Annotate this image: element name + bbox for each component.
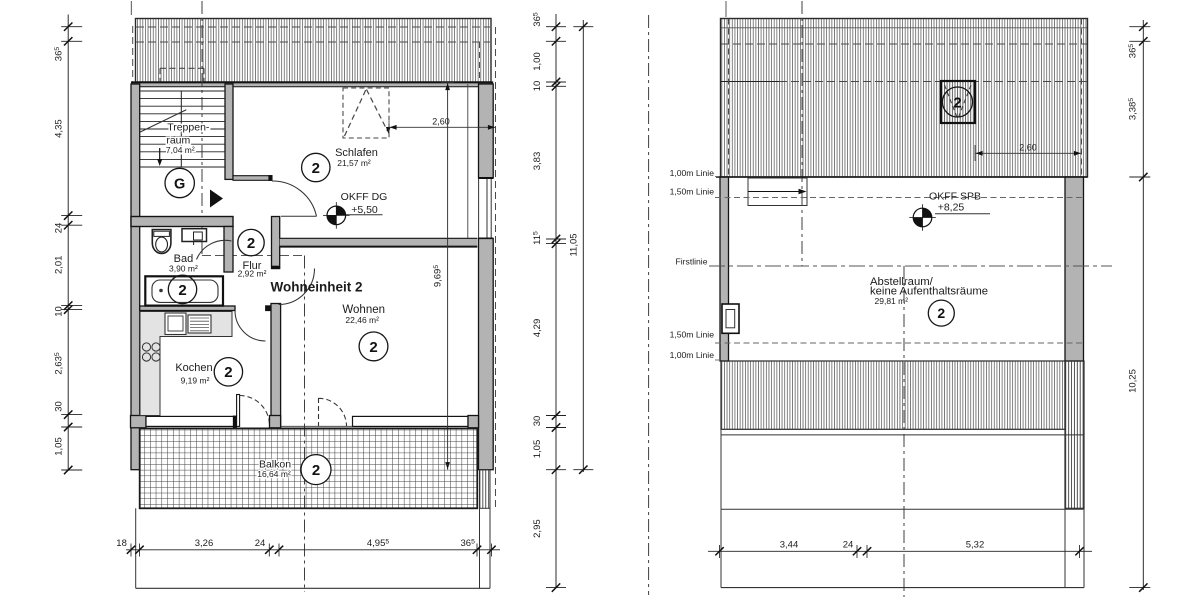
svg-text:5,32: 5,32 bbox=[966, 540, 985, 551]
svg-text:+5,50: +5,50 bbox=[351, 204, 378, 216]
svg-text:3,26: 3,26 bbox=[195, 538, 214, 549]
svg-text:3,83: 3,83 bbox=[532, 152, 543, 171]
svg-text:1,50m Linie: 1,50m Linie bbox=[670, 186, 715, 196]
svg-text:30: 30 bbox=[54, 401, 65, 412]
svg-text:2: 2 bbox=[953, 94, 961, 111]
svg-text:2: 2 bbox=[224, 364, 232, 381]
svg-text:1,50m Linie: 1,50m Linie bbox=[670, 330, 715, 340]
svg-text:21,57 m²: 21,57 m² bbox=[337, 158, 371, 168]
svg-text:+8,25: +8,25 bbox=[938, 202, 965, 214]
svg-text:2,01: 2,01 bbox=[54, 256, 65, 275]
svg-text:7,04 m²: 7,04 m² bbox=[166, 145, 195, 155]
svg-text:24: 24 bbox=[255, 538, 266, 549]
svg-text:16,64 m²: 16,64 m² bbox=[257, 469, 291, 479]
svg-text:2: 2 bbox=[369, 339, 377, 356]
svg-text:22,46 m²: 22,46 m² bbox=[345, 315, 379, 325]
svg-text:10: 10 bbox=[54, 306, 65, 317]
svg-text:G: G bbox=[174, 176, 185, 192]
svg-text:2: 2 bbox=[247, 235, 255, 252]
svg-text:Treppen-: Treppen- bbox=[167, 122, 210, 134]
svg-text:9,19 m²: 9,19 m² bbox=[181, 375, 210, 385]
svg-text:18: 18 bbox=[116, 538, 127, 549]
svg-text:4,35: 4,35 bbox=[54, 119, 65, 138]
svg-text:2: 2 bbox=[937, 305, 945, 321]
svg-text:29,81 m²: 29,81 m² bbox=[875, 296, 909, 306]
svg-text:24: 24 bbox=[843, 540, 854, 551]
svg-text:11,05: 11,05 bbox=[569, 233, 580, 256]
svg-text:1,05: 1,05 bbox=[532, 440, 543, 459]
svg-text:24: 24 bbox=[54, 223, 65, 234]
svg-text:2,60: 2,60 bbox=[1019, 143, 1037, 153]
svg-text:2: 2 bbox=[178, 282, 186, 299]
svg-text:2: 2 bbox=[312, 160, 320, 177]
svg-text:2,92 m²: 2,92 m² bbox=[238, 268, 267, 278]
svg-text:1,00m Linie: 1,00m Linie bbox=[670, 168, 715, 178]
svg-text:1,00: 1,00 bbox=[532, 52, 543, 71]
svg-text:10: 10 bbox=[532, 81, 543, 92]
svg-text:2,95: 2,95 bbox=[532, 519, 543, 538]
svg-text:10,25: 10,25 bbox=[1128, 369, 1139, 393]
svg-text:30: 30 bbox=[532, 416, 543, 427]
svg-text:OKFF DG: OKFF DG bbox=[341, 191, 388, 203]
svg-text:Kochen: Kochen bbox=[175, 362, 212, 374]
svg-text:Wohneinheit 2: Wohneinheit 2 bbox=[270, 280, 362, 295]
svg-text:Firstlinie: Firstlinie bbox=[676, 256, 708, 266]
svg-text:4,29: 4,29 bbox=[532, 319, 543, 338]
svg-text:2: 2 bbox=[312, 462, 320, 479]
svg-text:3,90 m²: 3,90 m² bbox=[169, 263, 198, 273]
svg-text:1,05: 1,05 bbox=[54, 437, 65, 456]
svg-text:1,00m Linie: 1,00m Linie bbox=[670, 350, 715, 360]
svg-text:3,44: 3,44 bbox=[780, 540, 799, 551]
